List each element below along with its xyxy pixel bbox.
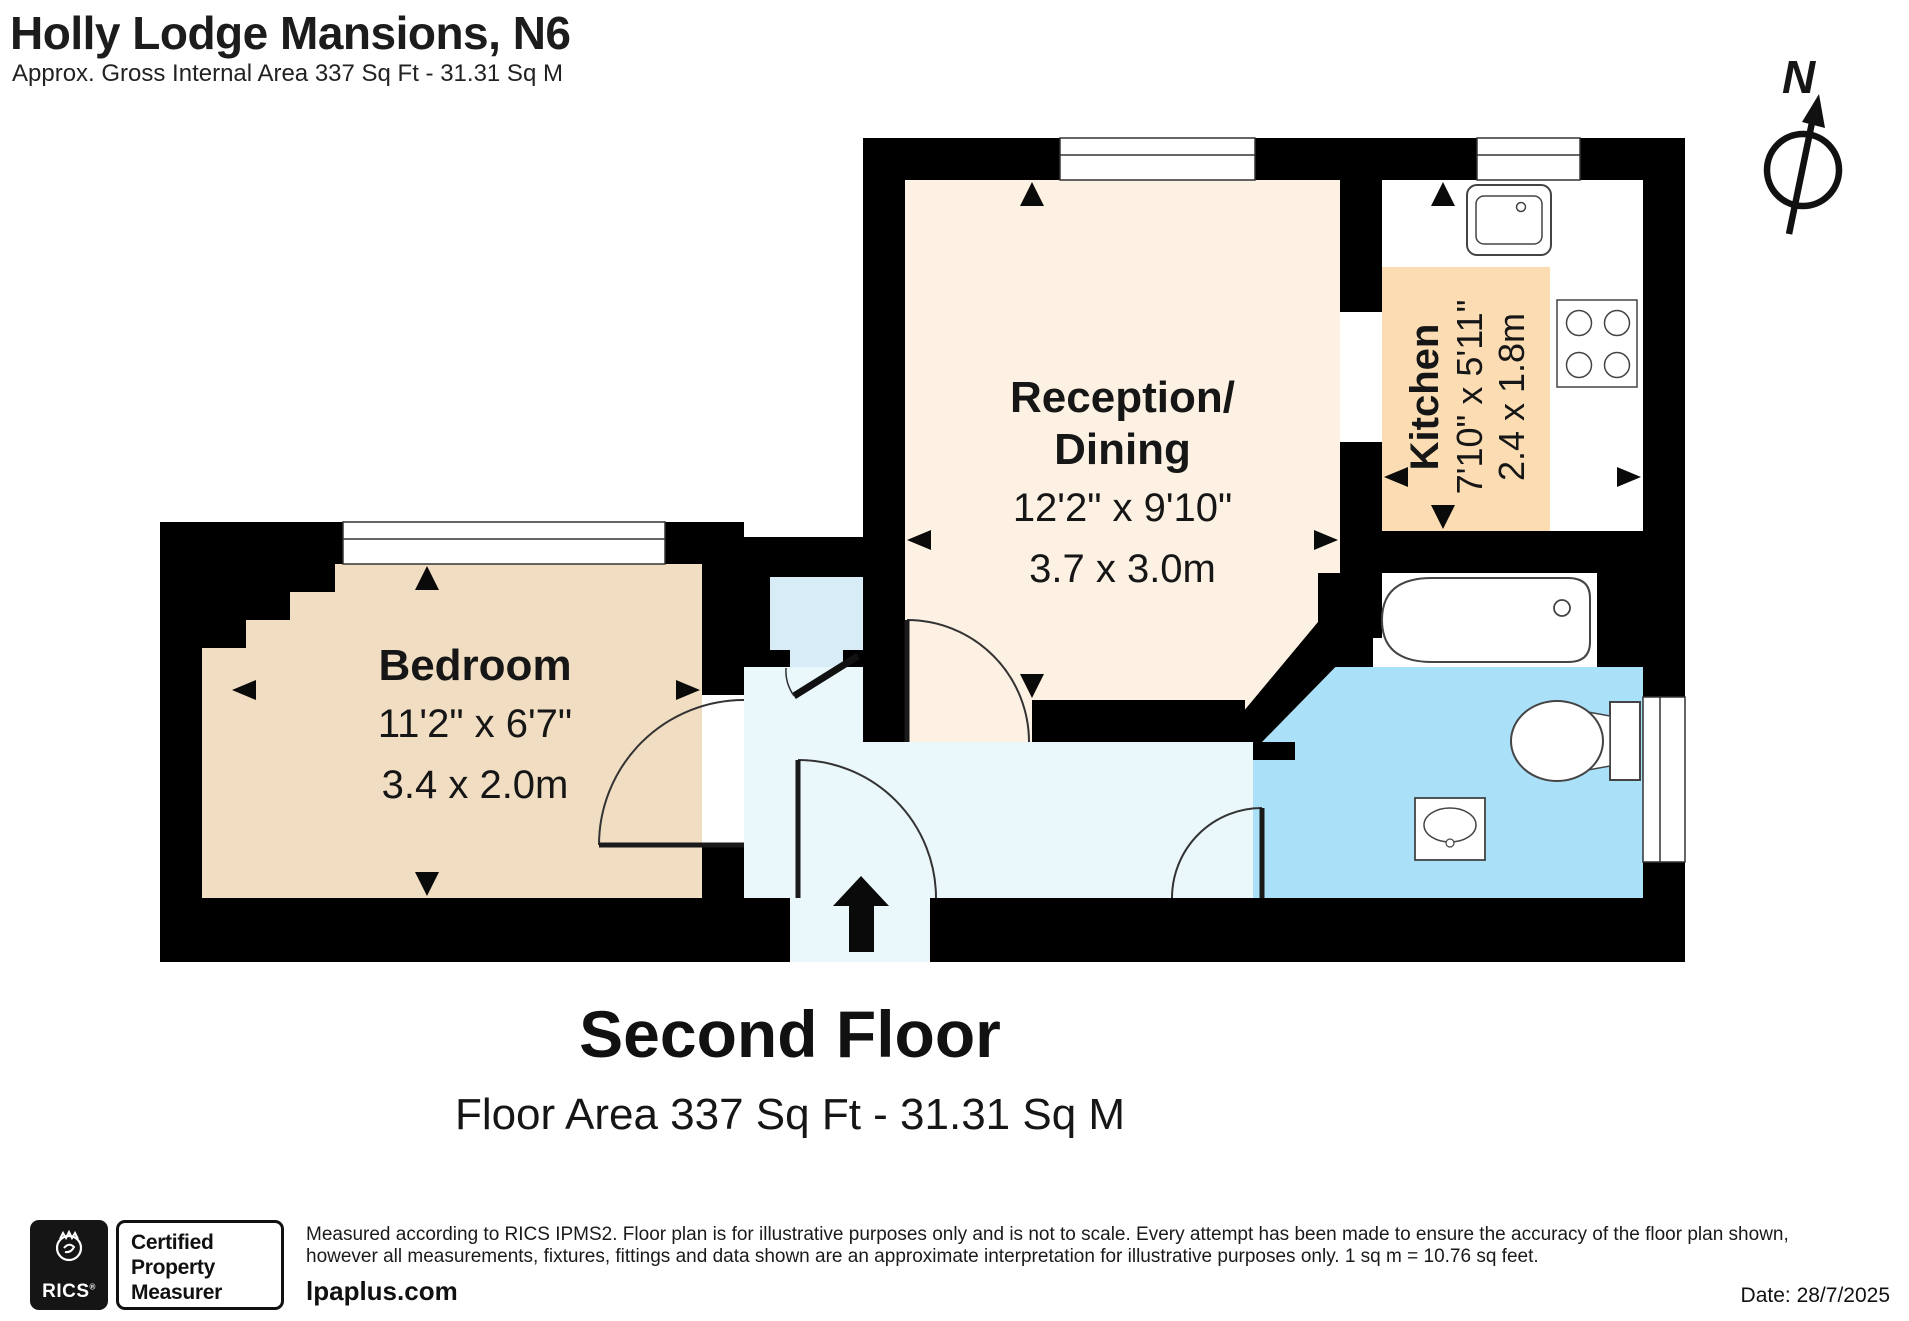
reception-window-icon	[1060, 138, 1255, 180]
wall-closet-top	[744, 537, 905, 577]
reception-dims-metric: 3.7 x 3.0m	[905, 540, 1340, 598]
kitchen-label: Kitchen 7'10" x 5'11" 2.4 x 1.8m	[1387, 257, 1547, 537]
certified-line-2: Property	[131, 1255, 281, 1280]
closet-jamb-left	[770, 650, 790, 667]
disclaimer-line1: Measured according to RICS IPMS2. Floor …	[306, 1224, 1789, 1246]
certified-property-measurer-badge: Certified Property Measurer	[116, 1220, 284, 1310]
reception-label: Reception/ Dining 12'2" x 9'10" 3.7 x 3.…	[905, 372, 1340, 598]
hob-icon	[1557, 300, 1637, 387]
kitchen-dims-metric: 2.4 x 1.8m	[1491, 257, 1533, 537]
website-label: lpaplus.com	[306, 1276, 458, 1307]
bedroom-window-icon	[343, 522, 665, 564]
bedroom-name: Bedroom	[240, 640, 710, 692]
bedroom-label: Bedroom 11'2" x 6'7" 3.4 x 2.0m	[240, 640, 710, 814]
floor-area-line: Floor Area 337 Sq Ft - 31.31 Sq M	[290, 1090, 1290, 1140]
date-label: Date: 28/7/2025	[1600, 1284, 1890, 1308]
wall-bedroom-left	[160, 522, 202, 962]
certified-line-1: Certified	[131, 1230, 281, 1255]
rics-logo: RICS®	[30, 1220, 108, 1310]
wall-bottom-left	[160, 898, 790, 962]
kitchen-name: Kitchen	[1401, 257, 1449, 537]
reception-name-line1: Reception/	[905, 372, 1340, 424]
rics-lion-icon	[50, 1228, 88, 1264]
floorplan-page: Holly Lodge Mansions, N6 Approx. Gross I…	[0, 0, 1909, 1321]
wall-reception-left	[863, 138, 905, 742]
north-compass-icon	[1767, 94, 1839, 234]
wall-reception-bottom	[1032, 700, 1245, 742]
bathtub-icon	[1382, 578, 1590, 662]
kitchen-dims-imperial: 7'10" x 5'11"	[1449, 257, 1491, 537]
bedroom-dims-metric: 3.4 x 2.0m	[240, 756, 710, 814]
north-label: N	[1782, 50, 1815, 104]
reception-name-line2: Dining	[905, 424, 1340, 476]
page-subtitle: Approx. Gross Internal Area 337 Sq Ft - …	[12, 60, 563, 88]
wall-right-upper	[1643, 138, 1685, 697]
wall-bedroom-right-lower	[702, 845, 744, 898]
bedroom-dims-imperial: 11'2" x 6'7"	[240, 692, 710, 756]
disclaimer-line2: however all measurements, fixtures, fitt…	[306, 1246, 1539, 1268]
bathroom-window-icon	[1643, 697, 1685, 862]
basin-icon	[1415, 798, 1485, 860]
wall-bath-right-inner	[1597, 573, 1643, 667]
bathroom-jamb	[1253, 742, 1295, 760]
reception-dims-imperial: 12'2" x 9'10"	[905, 476, 1340, 540]
wall-closet-left	[744, 577, 770, 667]
rics-label: RICS®	[42, 1281, 96, 1303]
wall-bottom-right	[930, 898, 1685, 962]
wall-kitchen-bottom	[1340, 531, 1685, 573]
kitchen-window-icon	[1477, 138, 1580, 180]
floor-heading: Second Floor	[290, 996, 1290, 1072]
kitchen-sink-icon	[1467, 185, 1551, 255]
page-title: Holly Lodge Mansions, N6	[10, 6, 571, 60]
certified-line-3: Measurer	[131, 1280, 281, 1305]
wall-reception-kitchen-upper	[1340, 180, 1382, 312]
toilet-icon	[1511, 701, 1640, 781]
